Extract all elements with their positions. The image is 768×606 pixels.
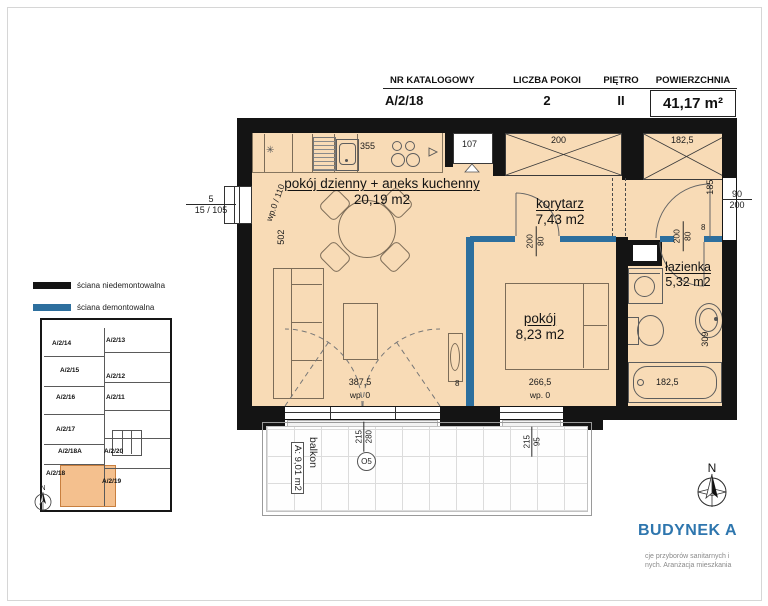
bed-pillow-divider (583, 325, 607, 326)
apartment-info-table: NR KATALOGOWY LICZBA POKOI PIĘTRO POWIER… (383, 75, 737, 117)
living-room-label: pokój dzienny + aneks kuchenny 20,19 m2 (262, 176, 502, 208)
dim-living-width: 387,5 (338, 377, 382, 387)
bathtub-drain (637, 379, 644, 386)
dim-gap-8: 8 (455, 379, 459, 388)
bedroom-area: 8,23 m2 (500, 327, 580, 343)
floor-number: II (593, 90, 649, 108)
wardrobe-divider-wall (622, 133, 643, 180)
niche-stub-left (445, 133, 453, 167)
dim-entry: 185 (705, 170, 715, 204)
footer-note-line2: nych. Aranżacja mieszkania (645, 561, 755, 570)
mini-unit-A-2-20: A/2/20 (104, 448, 123, 455)
mini-unit-A-2-15: A/2/15 (60, 367, 79, 374)
demountable-wall-vertical (466, 237, 474, 406)
dim-window-left-top: 5 (186, 194, 236, 205)
dim-wardrobe-1: 200 (548, 135, 569, 145)
sofa (273, 268, 324, 399)
mini-highlight-A-2-18 (60, 465, 116, 507)
dim-bath-door: 200 80 (673, 221, 694, 251)
dim-entry-door: 90 200 (722, 189, 752, 211)
toilet-bowl (637, 315, 664, 346)
dim-bedroom-door: 200 80 (526, 226, 547, 256)
bedroom-window (500, 406, 563, 420)
col-header-liczba-pokoi: LICZBA POKOI (501, 75, 593, 86)
corridor-label: korytarz 7,43 m2 (520, 196, 600, 228)
tv-screen (450, 343, 460, 371)
building-name: BUDYNEK A (560, 522, 737, 540)
mini-wall (44, 356, 104, 357)
balcony-window-mark: O5 (357, 452, 376, 471)
dim-bedroom-window-height: 215 (522, 427, 532, 457)
legend-swatch-demountable (33, 304, 71, 311)
mini-wall (44, 464, 104, 465)
dim-bath-door-width: 80 (684, 221, 694, 251)
mini-wall (105, 382, 170, 383)
coffee-table (343, 303, 378, 360)
living-room-name: pokój dzienny + aneks kuchenny (262, 176, 502, 192)
balcony-door-window (285, 406, 440, 420)
bathroom-name: łazienka (648, 260, 728, 275)
legend-label-non-demountable: ściana niedemontowalna (77, 281, 165, 290)
mini-unit-A-2-11: A/2/11 (106, 394, 125, 401)
dim-window-left: 5 15 / 105 (186, 194, 236, 216)
wall-right-upper (722, 133, 737, 178)
stove-burner (405, 141, 415, 151)
niche-stub-right (493, 133, 505, 176)
sofa-cushion-line (291, 284, 322, 285)
dim-niche: 107 (462, 139, 477, 149)
balcony-door-mullion (330, 407, 331, 419)
dim-wp0-bedroom: wp. 0 (524, 391, 556, 401)
dim-kitchen: 355 (360, 141, 375, 151)
opening-dashed-line (612, 178, 613, 236)
dishwasher (313, 137, 336, 171)
bedroom-bathroom-wall (616, 237, 628, 406)
mini-wall (44, 444, 104, 445)
dim-entry-door-height: 200 (722, 200, 752, 210)
catalog-number: A/2/18 (383, 90, 501, 108)
dim-bathtub: 182,5 (656, 377, 679, 387)
sofa-cushion-line (291, 360, 322, 361)
balcony-area-box: A: 9,01 m2 (291, 442, 304, 494)
mini-wall (105, 468, 170, 469)
mini-wall (105, 410, 170, 411)
living-room-area: 20,19 m2 (262, 192, 502, 208)
bathroom-area: 5,32 m2 (648, 275, 728, 290)
dim-balcony-door-height: 215 (354, 422, 364, 452)
window-left-frame (239, 187, 240, 223)
mini-unit-A-2-17: A/2/17 (56, 426, 75, 433)
legend-label-demountable: ściana demontowalna (77, 303, 154, 312)
footer-note: cje przyborów sanitarnych i nych. Aranża… (645, 552, 755, 570)
corridor-name: korytarz (520, 196, 600, 212)
dim-bedroom-window-width: 95 (533, 427, 542, 457)
legend-swatch-non-demountable (33, 282, 71, 289)
stove-burner (392, 141, 402, 151)
footer-note-line1: cje przyborów sanitarnych i (645, 552, 755, 561)
compass-north-label: N (708, 461, 717, 475)
col-header-pietro: PIĘTRO (593, 75, 649, 86)
hob-symbol: ✳ (266, 145, 274, 156)
mini-unit-A-2-14: A/2/14 (52, 340, 71, 347)
demountable-wall-bath-right (704, 236, 722, 242)
balcony-label: balkon (307, 437, 319, 468)
mini-unit-A-2-13: A/2/13 (106, 337, 125, 344)
mini-wall (44, 386, 104, 387)
area-value-box: 41,17 m² (650, 90, 736, 117)
dim-bedroom-width: 266,5 (518, 377, 562, 387)
sink-drain (345, 159, 348, 162)
demountable-wall-corridor-left (470, 236, 515, 242)
room-count: 2 (501, 90, 593, 108)
dim-bedroom-door-width: 80 (537, 226, 547, 256)
mini-wall (105, 352, 170, 353)
mini-compass-icon: N (30, 482, 56, 516)
kitchen-divider (264, 134, 265, 172)
dim-balcony-door: 215 280 (354, 422, 373, 452)
bedroom-window-frame (500, 412, 563, 413)
kitchen-divider (292, 134, 293, 172)
opening-dashed-line (625, 178, 626, 236)
dim-balcony-door-width: 280 (365, 422, 374, 452)
mini-unit-A-2-18: A/2/18 (46, 470, 65, 477)
mini-unit-A-2-19: A/2/19 (102, 478, 121, 485)
dim-bedroom-window: 215 95 (522, 427, 541, 457)
bedroom-label: pokój 8,23 m2 (500, 311, 580, 343)
bathroom-label: łazienka 5,32 m2 (648, 260, 728, 290)
sofa-backrest-line (291, 268, 292, 397)
bedroom-name: pokój (500, 311, 580, 327)
stove-burner (391, 153, 405, 167)
demountable-wall-corridor-right (560, 236, 616, 242)
stove-burner (406, 153, 420, 167)
dim-wardrobe-2: 182,5 (668, 135, 697, 145)
dim-living-depth: 502 (276, 220, 286, 254)
wall-left-lower (237, 224, 252, 406)
dining-table (338, 200, 396, 258)
dim-entry-door-width: 90 (722, 189, 752, 200)
sofa-cushion-line (291, 322, 322, 323)
dim-bath-depth: 309 (700, 322, 710, 356)
col-header-nr-katalogowy: NR KATALOGOWY (383, 75, 501, 86)
dim-wp0-living: wp. 0 (344, 391, 376, 401)
balcony-door-frame (285, 412, 440, 413)
dim-wall-8: 8 (701, 223, 705, 232)
col-header-powierzchnia: POWIERZCHNIA (649, 75, 737, 86)
dim-window-left-value: 15 / 105 (186, 205, 236, 215)
svg-text:N: N (40, 485, 45, 492)
compass-icon: N (688, 460, 736, 514)
wall-top (237, 118, 737, 133)
mini-wall (44, 414, 104, 415)
kitchen-sink-basin (339, 143, 356, 165)
balcony-door-mullion (395, 407, 396, 419)
wall-left-upper (237, 133, 252, 186)
mini-unit-A-2-16: A/2/16 (56, 394, 75, 401)
washbasin-tap (714, 317, 718, 321)
mini-unit-A-2-12: A/2/12 (106, 373, 125, 380)
mini-unit-A-2-18A: A/2/18A (58, 448, 82, 455)
floor-plan-page: { "header": { "columns": [ {"label": "NR… (0, 0, 768, 606)
